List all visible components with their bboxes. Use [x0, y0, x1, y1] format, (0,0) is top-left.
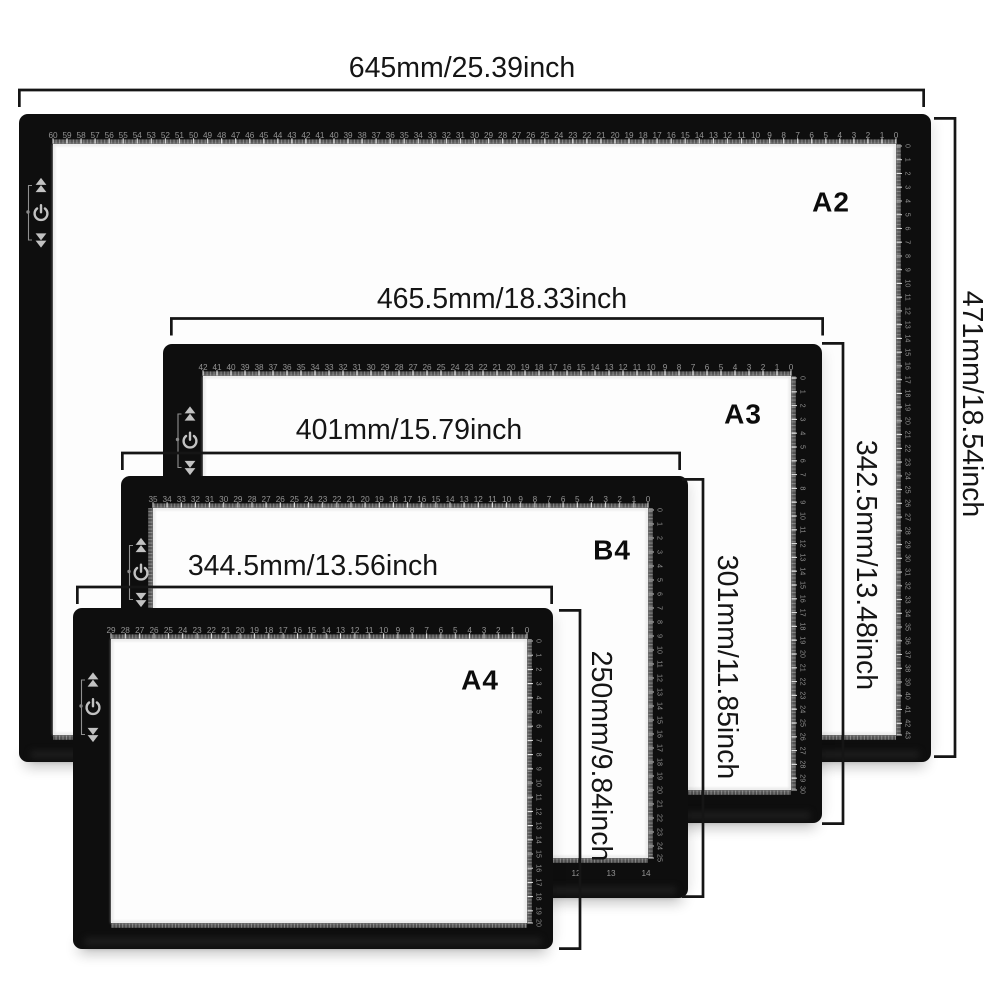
svg-text:24: 24 — [904, 472, 913, 480]
svg-text:8: 8 — [656, 620, 665, 624]
svg-text:21: 21 — [799, 664, 808, 672]
svg-text:20: 20 — [656, 786, 665, 794]
svg-text:5: 5 — [535, 710, 544, 714]
svg-text:29: 29 — [904, 541, 913, 549]
svg-text:10: 10 — [904, 279, 913, 287]
svg-text:301mm/11.85inch: 301mm/11.85inch — [711, 555, 743, 779]
svg-text:35: 35 — [904, 623, 913, 631]
svg-text:3: 3 — [904, 185, 913, 189]
svg-text:43: 43 — [904, 731, 913, 739]
svg-text:1: 1 — [799, 390, 808, 394]
svg-text:22: 22 — [799, 678, 808, 686]
svg-text:18: 18 — [535, 893, 544, 901]
svg-text:15: 15 — [656, 716, 665, 724]
svg-text:30: 30 — [904, 554, 913, 562]
svg-text:11: 11 — [656, 660, 665, 667]
svg-text:A2: A2 — [812, 187, 850, 218]
svg-text:14: 14 — [641, 869, 651, 878]
svg-text:12: 12 — [656, 674, 665, 682]
svg-text:5: 5 — [904, 213, 913, 217]
svg-text:17: 17 — [799, 609, 808, 617]
svg-text:14: 14 — [904, 334, 913, 342]
svg-text:33: 33 — [904, 596, 913, 604]
svg-text:8: 8 — [904, 254, 913, 258]
svg-text:3: 3 — [799, 417, 808, 421]
svg-text:17: 17 — [656, 744, 665, 752]
svg-text:27: 27 — [904, 513, 913, 521]
svg-text:23: 23 — [904, 458, 913, 466]
svg-text:B4: B4 — [593, 535, 631, 566]
svg-text:8: 8 — [535, 753, 544, 757]
svg-text:13: 13 — [606, 869, 616, 878]
svg-text:344.5mm/13.56inch: 344.5mm/13.56inch — [188, 550, 438, 582]
svg-text:12: 12 — [904, 307, 913, 315]
svg-text:10: 10 — [799, 512, 808, 520]
svg-text:13: 13 — [799, 553, 808, 561]
svg-text:14: 14 — [535, 836, 544, 844]
svg-text:1: 1 — [904, 158, 913, 162]
svg-text:0: 0 — [799, 376, 808, 380]
svg-text:41: 41 — [904, 706, 913, 714]
svg-text:4: 4 — [904, 199, 913, 203]
svg-text:19: 19 — [799, 636, 808, 644]
svg-text:26: 26 — [799, 733, 808, 741]
svg-text:6: 6 — [904, 227, 913, 231]
svg-text:8: 8 — [799, 486, 808, 490]
svg-text:28: 28 — [799, 760, 808, 768]
svg-text:9: 9 — [904, 268, 913, 272]
svg-text:10: 10 — [656, 646, 665, 654]
svg-text:39: 39 — [904, 678, 913, 686]
svg-text:1: 1 — [656, 522, 665, 526]
svg-text:9: 9 — [799, 500, 808, 504]
svg-text:24: 24 — [799, 705, 808, 713]
svg-text:22: 22 — [656, 814, 665, 822]
svg-text:28: 28 — [904, 527, 913, 535]
svg-text:10: 10 — [535, 779, 544, 787]
svg-text:20: 20 — [904, 417, 913, 425]
svg-text:29: 29 — [799, 774, 808, 782]
svg-text:25: 25 — [799, 719, 808, 727]
svg-text:20: 20 — [535, 919, 544, 927]
svg-text:4: 4 — [656, 564, 665, 568]
svg-text:342.5mm/13.48inch: 342.5mm/13.48inch — [850, 440, 882, 690]
svg-text:16: 16 — [799, 595, 808, 603]
svg-text:26: 26 — [904, 499, 913, 507]
svg-text:A3: A3 — [724, 399, 762, 430]
svg-text:19: 19 — [904, 403, 913, 411]
svg-text:6: 6 — [656, 592, 665, 596]
svg-text:13: 13 — [904, 321, 913, 329]
svg-text:31: 31 — [904, 568, 913, 576]
svg-text:16: 16 — [656, 730, 665, 738]
svg-text:34: 34 — [904, 609, 913, 617]
svg-text:0: 0 — [656, 508, 665, 512]
svg-text:5: 5 — [656, 578, 665, 582]
svg-text:38: 38 — [904, 664, 913, 672]
svg-text:15: 15 — [535, 850, 544, 858]
svg-text:25: 25 — [904, 486, 913, 494]
svg-text:27: 27 — [799, 747, 808, 755]
svg-text:3: 3 — [535, 682, 544, 686]
svg-text:5: 5 — [799, 445, 808, 449]
svg-text:22: 22 — [904, 444, 913, 452]
svg-text:0: 0 — [535, 639, 544, 643]
svg-text:18: 18 — [799, 622, 808, 630]
svg-text:7: 7 — [904, 240, 913, 244]
svg-text:37: 37 — [904, 651, 913, 659]
svg-text:16: 16 — [904, 362, 913, 370]
svg-text:13: 13 — [656, 688, 665, 696]
svg-text:6: 6 — [799, 459, 808, 463]
svg-text:32: 32 — [904, 582, 913, 590]
svg-text:401mm/15.79inch: 401mm/15.79inch — [296, 414, 523, 446]
svg-text:11: 11 — [904, 293, 913, 300]
svg-text:20: 20 — [799, 650, 808, 658]
svg-text:24: 24 — [656, 842, 665, 850]
svg-text:40: 40 — [904, 692, 913, 700]
svg-text:7: 7 — [535, 738, 544, 742]
svg-text:6: 6 — [535, 724, 544, 728]
svg-text:645mm/25.39inch: 645mm/25.39inch — [349, 52, 576, 84]
svg-text:3: 3 — [656, 550, 665, 554]
svg-text:11: 11 — [535, 793, 544, 800]
svg-text:16: 16 — [535, 864, 544, 872]
svg-text:14: 14 — [799, 567, 808, 575]
svg-text:21: 21 — [904, 431, 913, 439]
svg-text:19: 19 — [656, 772, 665, 780]
svg-text:25: 25 — [656, 854, 665, 862]
svg-text:2: 2 — [799, 404, 808, 408]
svg-text:23: 23 — [656, 828, 665, 836]
svg-text:30: 30 — [799, 786, 808, 794]
svg-text:17: 17 — [535, 878, 544, 886]
svg-text:465.5mm/18.33inch: 465.5mm/18.33inch — [377, 283, 627, 315]
svg-text:17: 17 — [904, 376, 913, 384]
svg-text:19: 19 — [535, 907, 544, 915]
svg-text:15: 15 — [904, 348, 913, 356]
svg-text:11: 11 — [799, 526, 808, 533]
svg-text:12: 12 — [535, 807, 544, 815]
svg-text:471mm/18.54inch: 471mm/18.54inch — [956, 291, 988, 518]
svg-text:14: 14 — [656, 702, 665, 710]
svg-text:15: 15 — [799, 581, 808, 589]
svg-text:7: 7 — [799, 473, 808, 477]
svg-text:7: 7 — [656, 606, 665, 610]
svg-text:0: 0 — [904, 144, 913, 148]
svg-text:9: 9 — [535, 767, 544, 771]
svg-text:2: 2 — [535, 667, 544, 671]
svg-text:21: 21 — [656, 800, 665, 808]
svg-text:12: 12 — [799, 540, 808, 548]
svg-text:4: 4 — [799, 431, 808, 435]
svg-text:42: 42 — [904, 719, 913, 727]
svg-text:18: 18 — [904, 389, 913, 397]
svg-text:9: 9 — [656, 634, 665, 638]
svg-text:2: 2 — [656, 536, 665, 540]
svg-text:A4: A4 — [461, 665, 499, 696]
svg-text:18: 18 — [656, 758, 665, 766]
svg-text:4: 4 — [535, 696, 544, 700]
svg-text:1: 1 — [535, 653, 544, 657]
svg-text:250mm/9.84inch: 250mm/9.84inch — [585, 651, 617, 862]
svg-text:13: 13 — [535, 822, 544, 830]
svg-text:36: 36 — [904, 637, 913, 645]
svg-text:2: 2 — [904, 172, 913, 176]
svg-text:23: 23 — [799, 691, 808, 699]
